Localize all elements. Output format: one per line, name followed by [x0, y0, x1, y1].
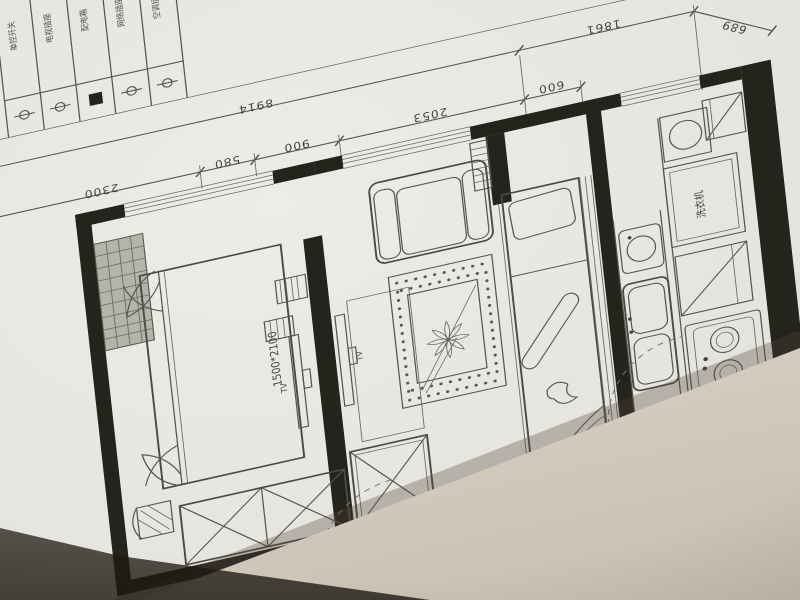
wall-vent-hatch — [260, 274, 311, 341]
dim-689: 689 — [719, 18, 749, 37]
dim-2300: 2300 — [83, 181, 119, 202]
pillow — [508, 187, 577, 241]
legend-label: 网络插座 — [113, 0, 127, 28]
stool-icon — [131, 501, 174, 541]
corner-flue-box — [702, 92, 746, 140]
distribution-box-icon — [89, 92, 103, 106]
sofa — [368, 159, 493, 265]
plant-flower-icon — [426, 317, 471, 362]
legend-table: 单控开关 电视插座 配电箱 网络插座 空调插座 — [0, 0, 800, 140]
dim-600: 600 — [537, 78, 565, 97]
washbasin-icon — [618, 223, 664, 275]
hall-tv-icon: TV — [335, 311, 370, 406]
kitchen-window — [620, 76, 700, 107]
legend-label: 单控开关 — [6, 20, 20, 52]
washing-machine: 洗衣机 — [663, 153, 745, 248]
legend-label: 空调插座 — [148, 0, 162, 20]
dim-580: 580 — [213, 153, 241, 172]
dim-1861: 1861 — [585, 17, 621, 38]
bedroom-window — [124, 171, 274, 217]
legend-label: 配电箱 — [77, 8, 90, 32]
fridge-counter — [675, 241, 753, 316]
legend-label: 电视插座 — [41, 12, 55, 44]
dim-8914: 8914 — [238, 96, 274, 117]
tv-cabinet — [347, 287, 425, 442]
dim-900: 900 — [283, 136, 311, 155]
hall-window — [342, 127, 471, 169]
crumpled-blanket — [546, 379, 577, 407]
rug-table — [388, 254, 506, 408]
bolster — [519, 291, 582, 371]
washing-machine-label: 洗衣机 — [692, 189, 709, 219]
floor-plan-photo: 单控开关 电视插座 配电箱 网络插座 空调插座 — [0, 0, 800, 600]
dim-2053: 2053 — [412, 105, 448, 126]
